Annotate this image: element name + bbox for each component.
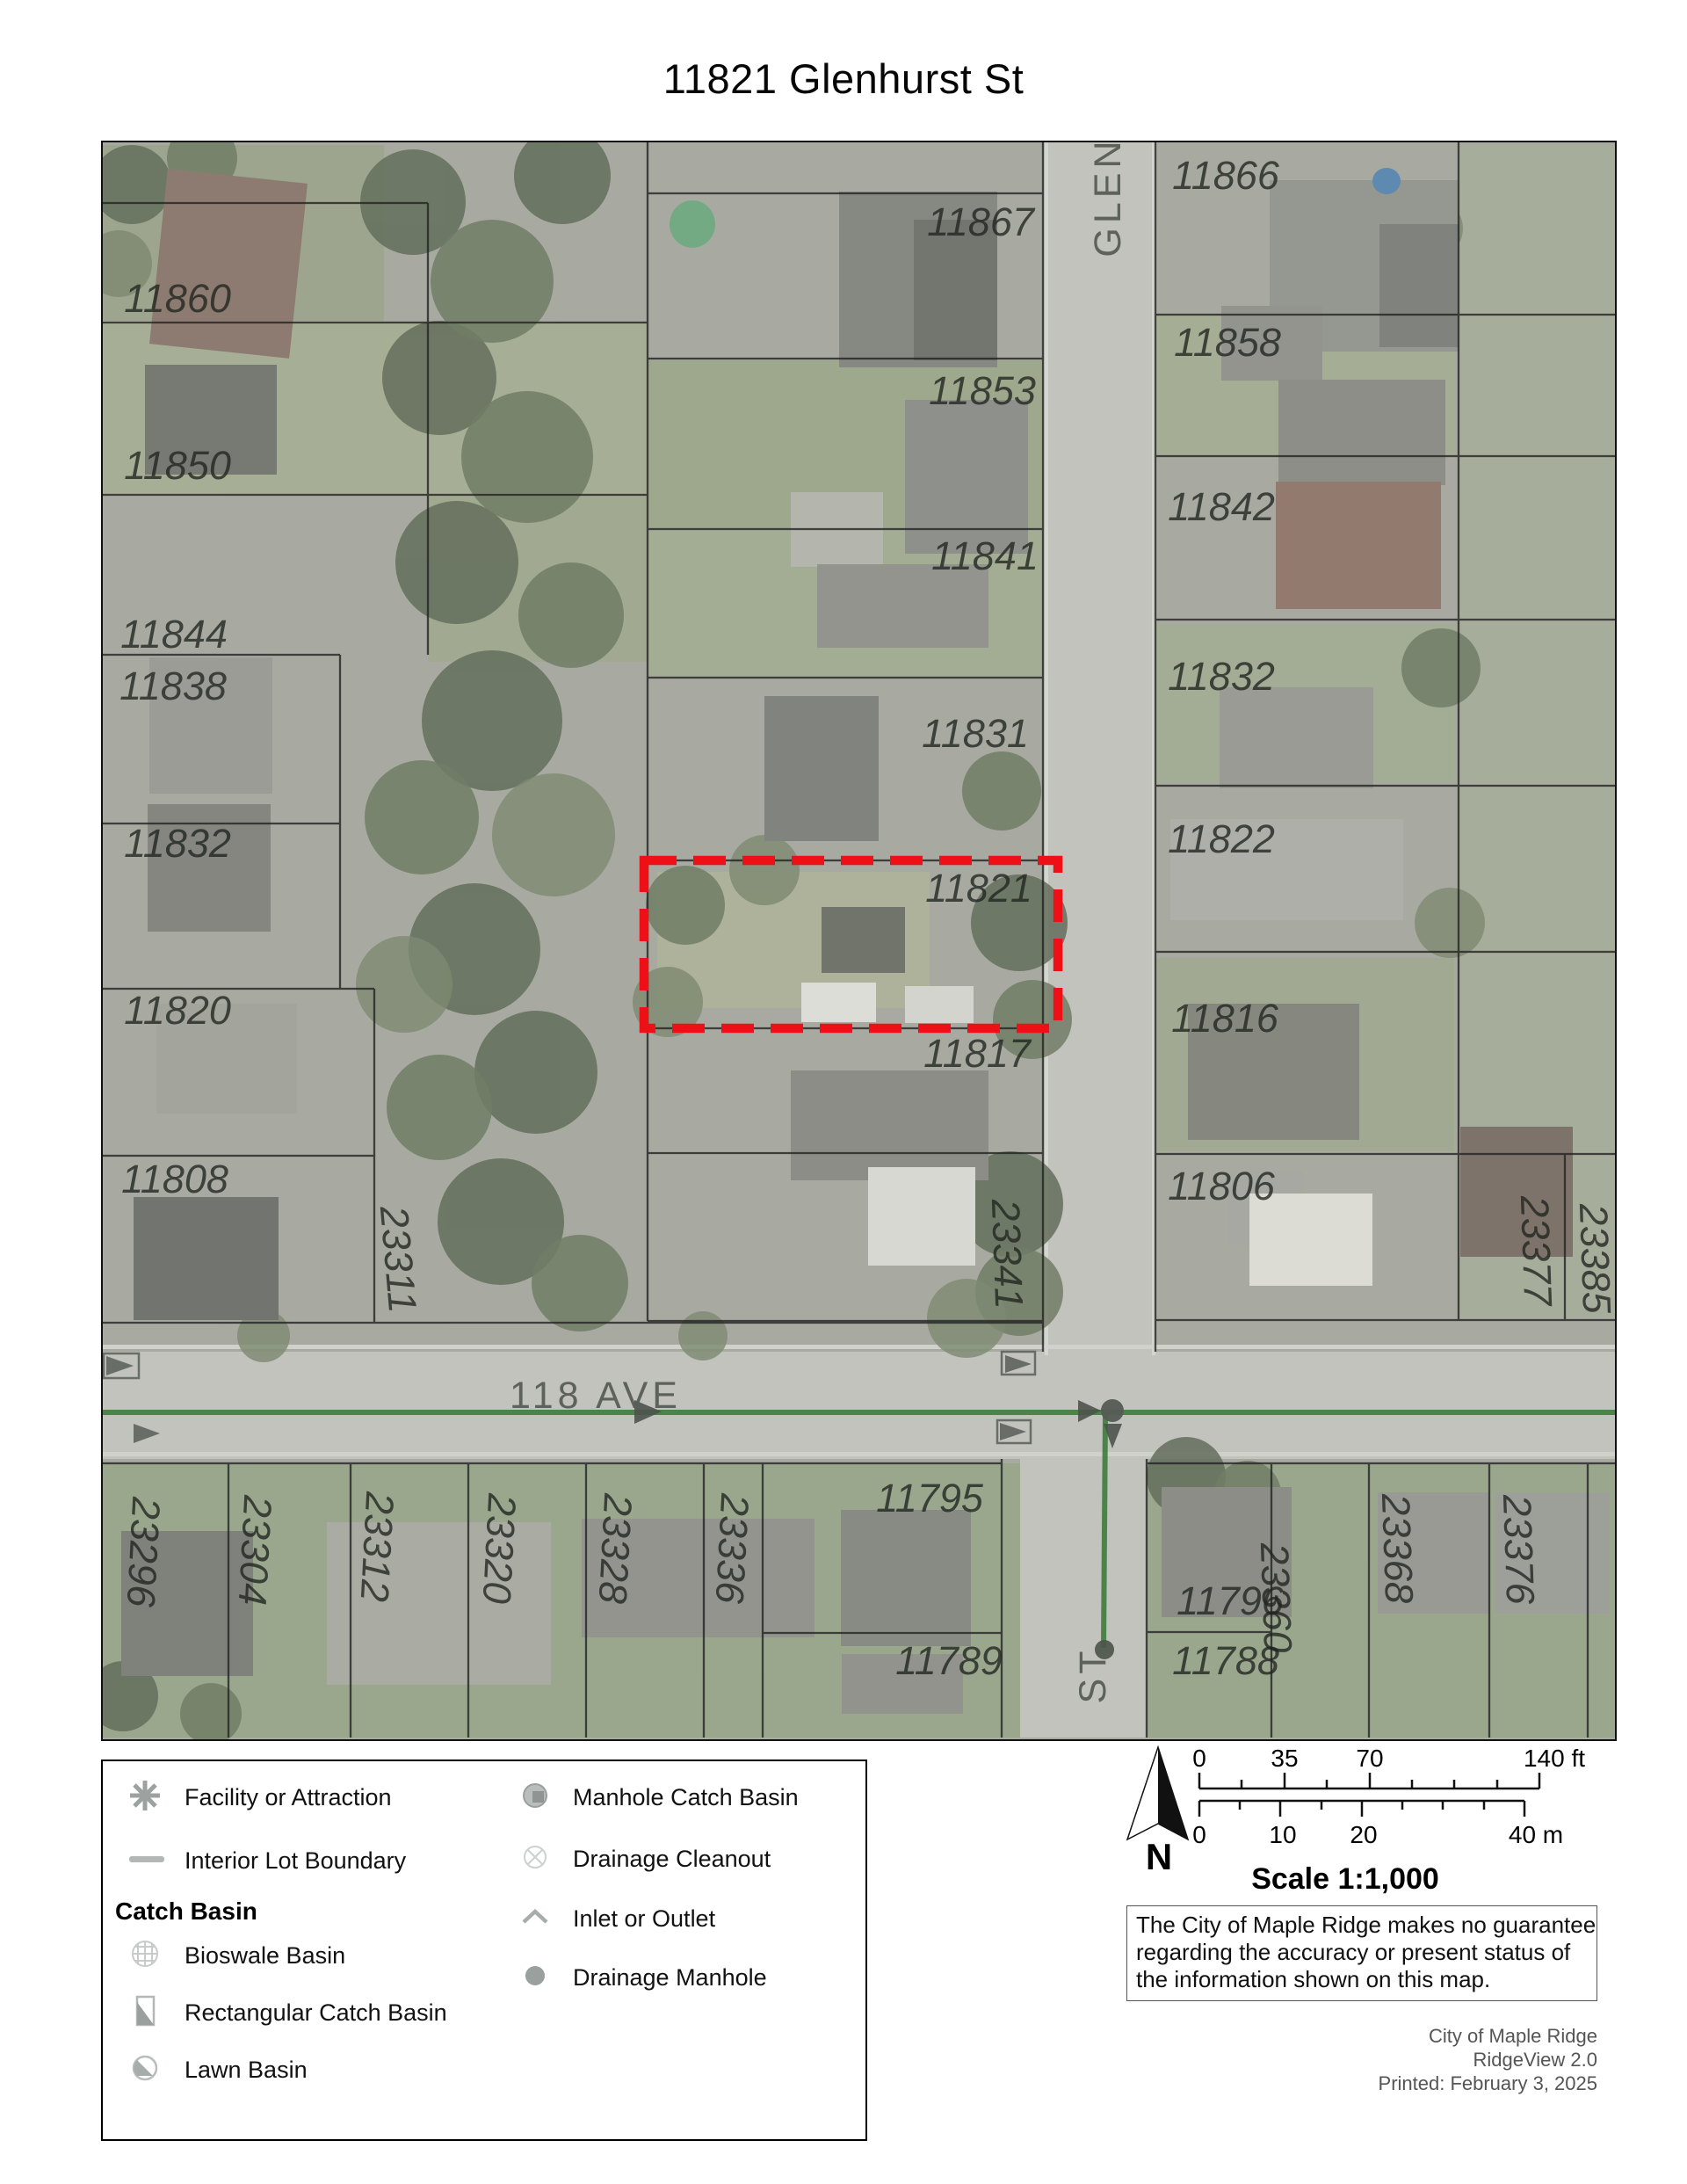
page-title: 11821 Glenhurst St bbox=[0, 54, 1687, 103]
subject-parcel-label: 11821 bbox=[925, 866, 1032, 911]
legend-row-facility: Facility or Attraction bbox=[127, 1779, 392, 1816]
credits-line: Printed: February 3, 2025 bbox=[1379, 2072, 1597, 2095]
parcel-label: 11867 bbox=[927, 200, 1036, 244]
parcel-label: 23312 bbox=[352, 1490, 403, 1603]
street-label-glenhurst-st: ST bbox=[1072, 1647, 1114, 1704]
parcel-label: 23336 bbox=[707, 1491, 758, 1606]
svg-text:40 m: 40 m bbox=[1509, 1821, 1563, 1848]
svg-text:140 ft: 140 ft bbox=[1524, 1745, 1585, 1772]
street-label-118ave: 118 AVE bbox=[510, 1375, 682, 1417]
legend-row-manhole-catch-basin: Manhole Catch Basin bbox=[518, 1779, 799, 1816]
legend-label: Interior Lot Boundary bbox=[185, 1847, 406, 1875]
legend-row-drainage-cleanout: Drainage Cleanout bbox=[518, 1840, 771, 1877]
parcel-label: 11831 bbox=[922, 711, 1029, 756]
parcel-label: 11866 bbox=[1172, 153, 1280, 198]
parcel-label: 11822 bbox=[1168, 816, 1275, 861]
legend-label: Facility or Attraction bbox=[185, 1784, 392, 1811]
parcel-label: 11858 bbox=[1174, 320, 1281, 365]
svg-text:0: 0 bbox=[1192, 1745, 1206, 1772]
legend-label: Drainage Cleanout bbox=[573, 1846, 771, 1873]
parcel-label: 23376 bbox=[1495, 1493, 1543, 1607]
parcel-label: 11795 bbox=[876, 1476, 984, 1520]
scale-ticks bbox=[1199, 1773, 1539, 1817]
scale-ratio-label: Scale 1:1,000 bbox=[1251, 1862, 1439, 1896]
legend-row-interior-lot: Interior Lot Boundary bbox=[127, 1842, 406, 1879]
lot-boundary-line-icon bbox=[127, 1841, 166, 1881]
credits-line: RidgeView 2.0 bbox=[1379, 2048, 1597, 2072]
lawn-basin-icon bbox=[127, 2050, 163, 2090]
parcel-label: 11841 bbox=[931, 533, 1039, 578]
parcel-label: 23320 bbox=[474, 1491, 525, 1605]
legend-label: Manhole Catch Basin bbox=[573, 1784, 799, 1811]
legend-row-inlet-outlet: Inlet or Outlet bbox=[518, 1900, 715, 1937]
legend-row-lawn: Lawn Basin bbox=[127, 2050, 308, 2089]
parcel-label: 11806 bbox=[1168, 1164, 1276, 1208]
parcel-label: 23368 bbox=[1373, 1492, 1422, 1605]
disclaimer-line: The City of Maple Ridge makes no guarant… bbox=[1136, 1912, 1596, 1939]
legend-row-bioswale: Bioswale Basin bbox=[127, 1937, 345, 1974]
legend-label: Lawn Basin bbox=[185, 2057, 308, 2084]
parcel-label: 11808 bbox=[121, 1157, 228, 1201]
legend-group-header: Catch Basin bbox=[115, 1897, 257, 1926]
facility-star-icon bbox=[127, 1778, 163, 1818]
parcel-label: 11838 bbox=[119, 664, 227, 708]
legend: Facility or Attraction Interior Lot Boun… bbox=[101, 1760, 867, 2141]
parcel-label: 11832 bbox=[124, 821, 231, 866]
svg-text:35: 35 bbox=[1271, 1745, 1298, 1772]
parcel-label: 23311 bbox=[372, 1203, 426, 1315]
parcel-label: 23360 bbox=[1252, 1542, 1300, 1654]
credits-line: City of Maple Ridge bbox=[1379, 2024, 1597, 2048]
legend-row-drainage-manhole: Drainage Manhole bbox=[518, 1959, 767, 1996]
bioswale-basin-icon bbox=[127, 1936, 163, 1976]
rectangular-catch-basin-icon bbox=[127, 1992, 163, 2035]
parcel-label: 11816 bbox=[1171, 996, 1279, 1041]
svg-text:10: 10 bbox=[1269, 1821, 1296, 1848]
parcel-label: 11844 bbox=[120, 612, 228, 657]
parcel-label: 11832 bbox=[1168, 654, 1275, 699]
parcel-label: 23377 bbox=[1512, 1194, 1560, 1309]
legend-label: Drainage Manhole bbox=[573, 1964, 767, 1992]
parcel-label: 23328 bbox=[590, 1491, 641, 1605]
parcel-label: 11820 bbox=[124, 988, 231, 1033]
credits: City of Maple Ridge RidgeView 2.0 Printe… bbox=[1379, 2024, 1597, 2095]
svg-text:0: 0 bbox=[1192, 1821, 1206, 1848]
disclaimer-box: The City of Maple Ridge makes no guarant… bbox=[1126, 1905, 1597, 2001]
disclaimer-line: regarding the accuracy or present status… bbox=[1136, 1939, 1596, 1966]
aerial-map: 11860 11850 11844 11838 11832 11820 1180… bbox=[101, 141, 1617, 1741]
svg-text:20: 20 bbox=[1350, 1821, 1377, 1848]
parcel-label: 11850 bbox=[124, 443, 231, 488]
legend-row-rectangular: Rectangular Catch Basin bbox=[127, 1993, 447, 2032]
parcel-label: 11860 bbox=[124, 276, 231, 321]
north-arrow-icon: N bbox=[1127, 1747, 1188, 1877]
parcel-label: 23304 bbox=[230, 1493, 281, 1607]
drainage-manhole-icon bbox=[518, 1958, 553, 1998]
north-label: N bbox=[1146, 1836, 1172, 1877]
scale-labels: 0 35 70 140 ft 0 10 20 40 m bbox=[1192, 1745, 1585, 1848]
parcel-label: 23296 bbox=[119, 1495, 170, 1609]
parcel-label: 11842 bbox=[1168, 484, 1275, 529]
parcel-label: 11853 bbox=[929, 368, 1036, 413]
parcel-label: 11817 bbox=[923, 1031, 1032, 1076]
legend-label: Bioswale Basin bbox=[185, 1942, 345, 1970]
legend-label: Inlet or Outlet bbox=[573, 1905, 715, 1933]
drainage-cleanout-icon bbox=[518, 1839, 553, 1879]
svg-text:70: 70 bbox=[1356, 1745, 1383, 1772]
inlet-outlet-icon bbox=[518, 1899, 553, 1939]
manhole-marker bbox=[1101, 1399, 1124, 1422]
parcel-label: 23385 bbox=[1571, 1202, 1615, 1316]
manhole-catch-basin-icon bbox=[518, 1778, 553, 1818]
disclaimer-line: the information shown on this map. bbox=[1136, 1966, 1596, 1993]
parcel-label: 11789 bbox=[895, 1638, 1003, 1683]
scale-bar: N 0 35 70 140 ft 0 10 20 40 m Scale 1:1,… bbox=[1120, 1745, 1647, 1903]
parcel-label: 23341 bbox=[983, 1198, 1032, 1310]
legend-label: Rectangular Catch Basin bbox=[185, 1999, 447, 2027]
street-label-glenhurst: GLEN bbox=[1087, 142, 1129, 258]
